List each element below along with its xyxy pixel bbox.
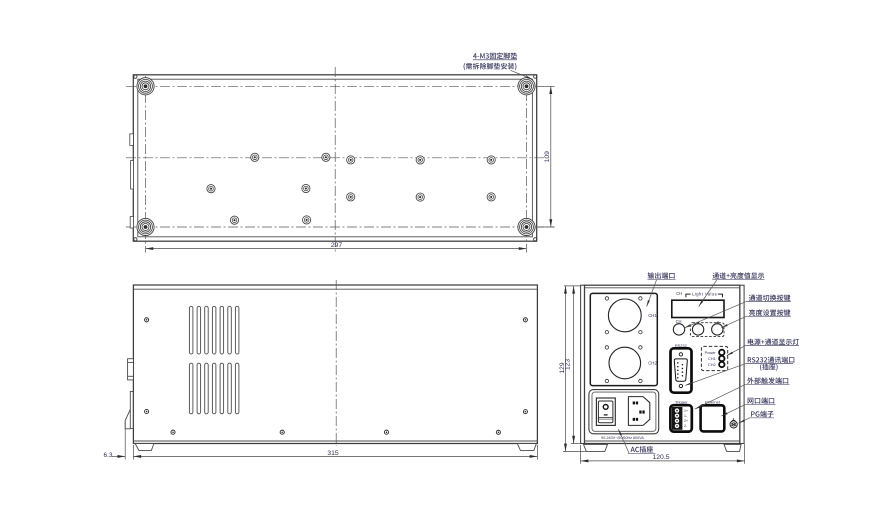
svg-text:2+: 2+ (684, 419, 688, 423)
svg-text:Trigger: Trigger (675, 399, 688, 404)
svg-text:CH: CH (676, 291, 682, 296)
svg-text:CH1: CH1 (708, 356, 716, 361)
svg-text:120.5: 120.5 (653, 454, 670, 461)
svg-text:CH2: CH2 (648, 361, 657, 366)
svg-text:1+: 1+ (684, 409, 688, 413)
svg-text:CH1: CH1 (648, 313, 657, 318)
svg-text:Light Value: Light Value (692, 291, 717, 296)
svg-text:6.3: 6.3 (104, 452, 113, 459)
svg-text:109: 109 (544, 151, 551, 163)
svg-text:315: 315 (327, 450, 339, 457)
svg-text:123: 123 (564, 359, 571, 370)
svg-text:Power: Power (705, 350, 717, 355)
svg-text:CH: CH (676, 319, 682, 324)
svg-text:CH2: CH2 (708, 362, 716, 367)
svg-text:297: 297 (331, 242, 343, 249)
